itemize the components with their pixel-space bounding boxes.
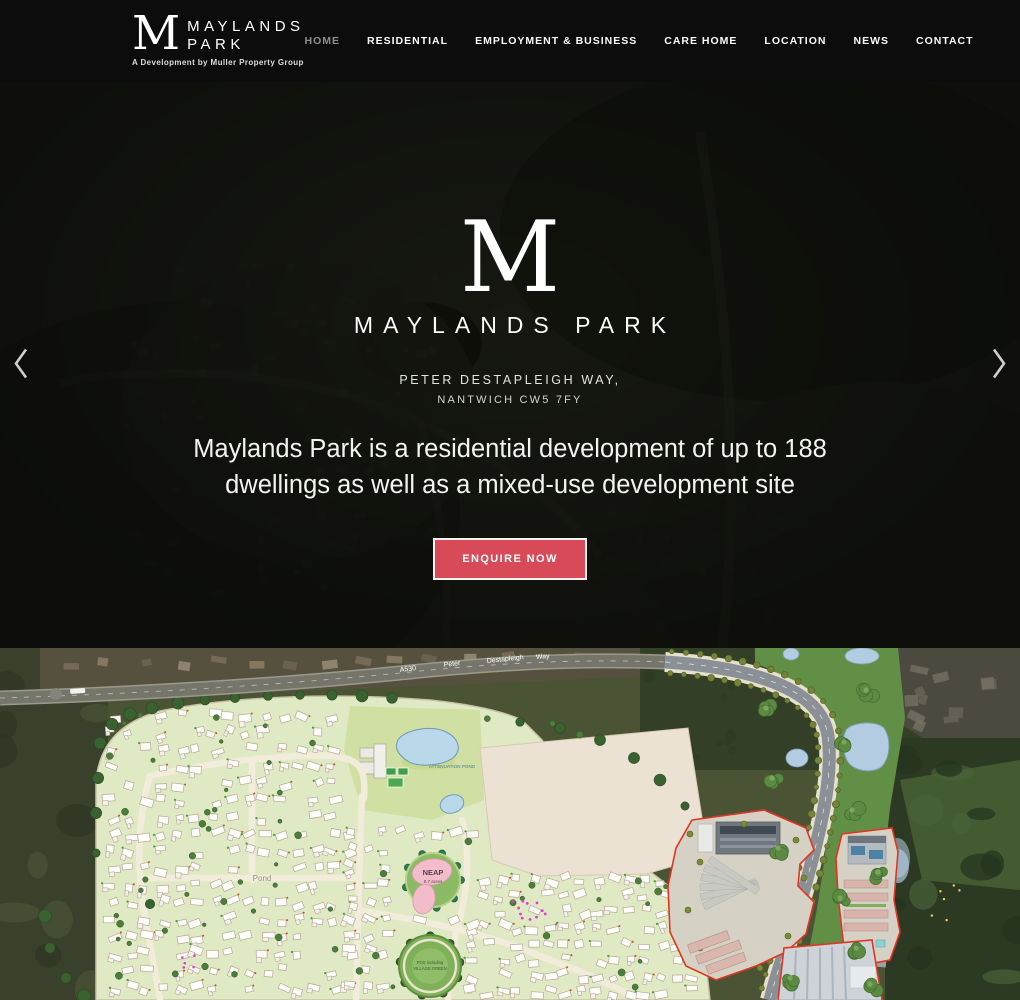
hero-content: M MAYLANDS PARK PETER DESTAPLEIGH WAY, N… [0, 82, 1020, 580]
nav-news[interactable]: NEWS [853, 35, 889, 47]
village-green-label-1: POS including [417, 960, 444, 965]
logo-monogram: M [132, 16, 180, 53]
masterplan-section: A530 Peter Destapleigh Way ATTENUATION P… [0, 648, 1020, 1000]
hero-section: M MAYLANDS PARK PETER DESTAPLEIGH WAY, N… [0, 82, 1020, 648]
site-logo[interactable]: M MAYLANDS PARK A Development by Muller … [132, 16, 305, 67]
road-label-way: Way [536, 653, 551, 661]
hero-heading-line1: Maylands Park is a residential developme… [190, 432, 830, 468]
nav-employment-business[interactable]: EMPLOYMENT & BUSINESS [475, 35, 637, 47]
vacant-parcel [480, 728, 708, 876]
attenuation-pond-label: ATTENUATION POND [429, 764, 476, 769]
carousel-next-button[interactable] [986, 343, 1012, 388]
logo-tagline: A Development by Muller Property Group [132, 58, 305, 67]
nav-residential[interactable]: RESIDENTIAL [367, 35, 448, 47]
site-header: M MAYLANDS PARK A Development by Muller … [0, 0, 1020, 82]
chevron-right-icon [990, 347, 1008, 381]
neap-label: NEAP [423, 868, 444, 877]
nav-location[interactable]: LOCATION [764, 35, 826, 47]
nav-home[interactable]: HOME [305, 35, 341, 47]
neap-area-label: 0.7 acres [424, 879, 443, 884]
village-green-label-2: VILLAGE GREEN [413, 966, 447, 971]
nav-care-home[interactable]: CARE HOME [664, 35, 737, 47]
attenuation-pond [396, 728, 458, 765]
hero-address-line1: PETER DESTAPLEIGH WAY, [0, 373, 1020, 387]
logo-title-line2: PARK [187, 36, 304, 54]
logo-title-line1: MAYLANDS [187, 18, 304, 36]
hero-address-line2: NANTWICH CW5 7FY [0, 394, 1020, 406]
chevron-left-icon [12, 347, 30, 381]
pond-label: Pond [253, 874, 272, 883]
hero-heading-line2: dwellings as well as a mixed-use develop… [190, 468, 830, 504]
hero-brand-title: MAYLANDS PARK [0, 312, 1020, 339]
hero-monogram: M [0, 220, 1020, 296]
main-nav: HOME RESIDENTIAL EMPLOYMENT & BUSINESS C… [305, 35, 974, 47]
carousel-prev-button[interactable] [8, 343, 34, 388]
nav-contact[interactable]: CONTACT [916, 35, 974, 47]
enquire-now-button[interactable]: ENQUIRE NOW [433, 538, 586, 580]
masterplan-illustration: A530 Peter Destapleigh Way ATTENUATION P… [0, 648, 1020, 1000]
hero-heading: Maylands Park is a residential developme… [190, 432, 830, 503]
